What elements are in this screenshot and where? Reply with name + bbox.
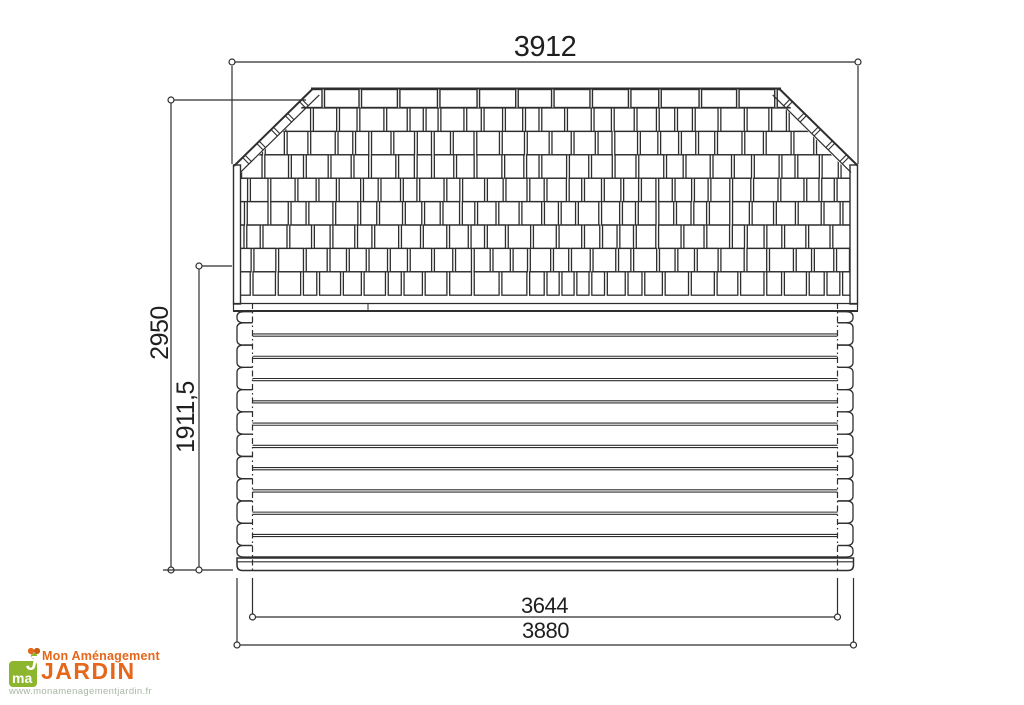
brand-name-main: JARDIN	[41, 660, 136, 683]
roof	[218, 89, 883, 312]
roof-shingles	[218, 108, 883, 295]
brand-website: www.monamenagementjardin.fr	[9, 686, 152, 697]
dim-wall-height: 1911,5	[171, 347, 201, 487]
wall	[237, 303, 853, 570]
badge-j-text: J	[26, 654, 37, 674]
dim-roof-width: 3912	[232, 33, 858, 62]
technical-drawing-canvas: 3912 2950 1911,5 3644 3880 Mon Aménageme…	[0, 0, 1024, 705]
base	[237, 558, 854, 571]
brand-badge: ma J	[9, 661, 37, 687]
dim-base-width: 3880	[237, 620, 854, 642]
dimension-lines	[163, 59, 861, 648]
ridge-shingles	[296, 90, 809, 108]
dim-inner-width: 3644	[252, 595, 837, 617]
brand-logo: Mon Aménagement ma J JARDIN www.monamena…	[0, 644, 170, 702]
